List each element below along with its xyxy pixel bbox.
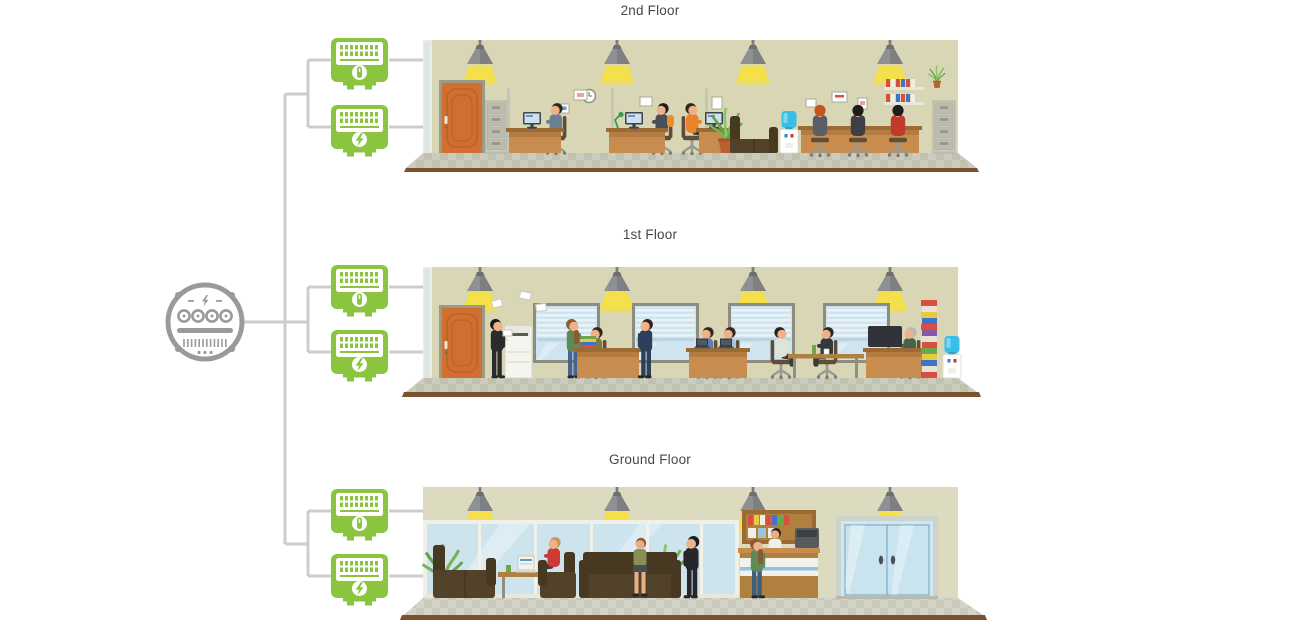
binder-stack — [921, 300, 937, 378]
floor-scene-second — [404, 40, 979, 172]
door-handle — [879, 556, 883, 565]
filing-cabinet — [933, 101, 955, 153]
laptop-on-table — [516, 556, 536, 573]
submeter-2nd-bolt — [331, 105, 388, 157]
cubicle-desk-2 — [606, 128, 668, 153]
submeter-1st-plug — [331, 265, 388, 317]
submeter-2nd-plug — [331, 38, 388, 90]
book-stack — [580, 336, 596, 348]
submetering-diagram: 2nd Floor 1st Floor Ground Floor — [0, 0, 1296, 623]
utility-meter-icon — [168, 285, 242, 359]
cubicle-desk-1 — [506, 128, 564, 153]
sofa — [579, 552, 681, 598]
long-hair — [574, 330, 579, 344]
reception-desk — [738, 548, 820, 598]
front-desk-2 — [686, 348, 750, 378]
corner-desk — [863, 348, 931, 378]
diagram-graphics — [0, 0, 1296, 623]
submeter-1st-bolt — [331, 330, 388, 382]
door-handle — [891, 556, 895, 565]
monitor-back — [868, 326, 902, 347]
armchair-armrest — [538, 560, 547, 586]
backpack — [667, 115, 674, 127]
submeter-ground-plug — [331, 489, 388, 541]
office-door — [439, 80, 485, 153]
laptop — [695, 339, 710, 349]
water-cooler — [780, 111, 798, 153]
glass-entrance-doors — [836, 516, 938, 599]
office-safe-door — [797, 530, 817, 537]
submeter-ground-bolt — [331, 554, 388, 606]
office-door — [439, 305, 485, 378]
floor-scene-first — [402, 267, 981, 397]
water-cooler — [943, 336, 961, 378]
filing-cabinet — [485, 101, 507, 153]
paper — [503, 330, 512, 336]
long-hair — [758, 549, 763, 564]
floor-scene-ground — [400, 487, 987, 620]
laptop — [719, 339, 734, 349]
